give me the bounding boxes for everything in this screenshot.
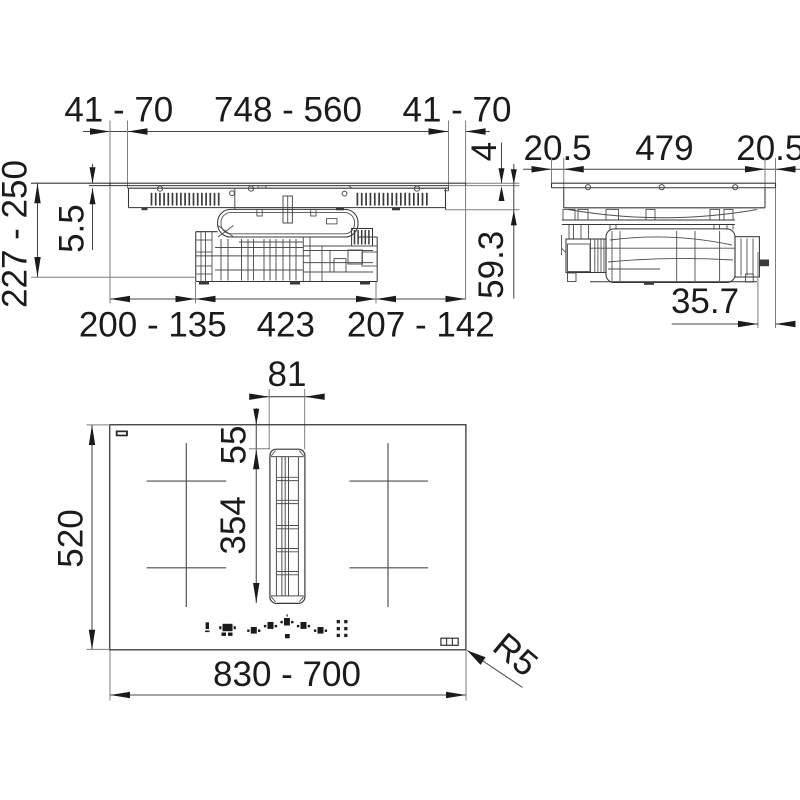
svg-text:479: 479	[635, 129, 693, 168]
svg-text:20.5: 20.5	[736, 129, 800, 168]
svg-text:520: 520	[51, 509, 90, 567]
svg-text:41 - 70: 41 - 70	[64, 90, 173, 129]
svg-text:59.3: 59.3	[472, 231, 511, 299]
svg-text:207 - 142: 207 - 142	[347, 306, 495, 345]
svg-text:354: 354	[214, 496, 253, 554]
svg-text:423: 423	[257, 306, 315, 345]
svg-text:5.5: 5.5	[53, 204, 92, 253]
svg-text:55: 55	[214, 426, 253, 465]
svg-text:830 - 700: 830 - 700	[213, 655, 361, 694]
svg-text:748 - 560: 748 - 560	[214, 90, 362, 129]
svg-text:41 - 70: 41 - 70	[403, 90, 512, 129]
svg-text:35.7: 35.7	[671, 282, 739, 321]
svg-text:81: 81	[268, 355, 307, 394]
svg-text:200 - 135: 200 - 135	[79, 306, 227, 345]
svg-text:4: 4	[465, 142, 504, 161]
svg-text:227 - 250: 227 - 250	[0, 160, 35, 308]
svg-text:20.5: 20.5	[524, 129, 592, 168]
